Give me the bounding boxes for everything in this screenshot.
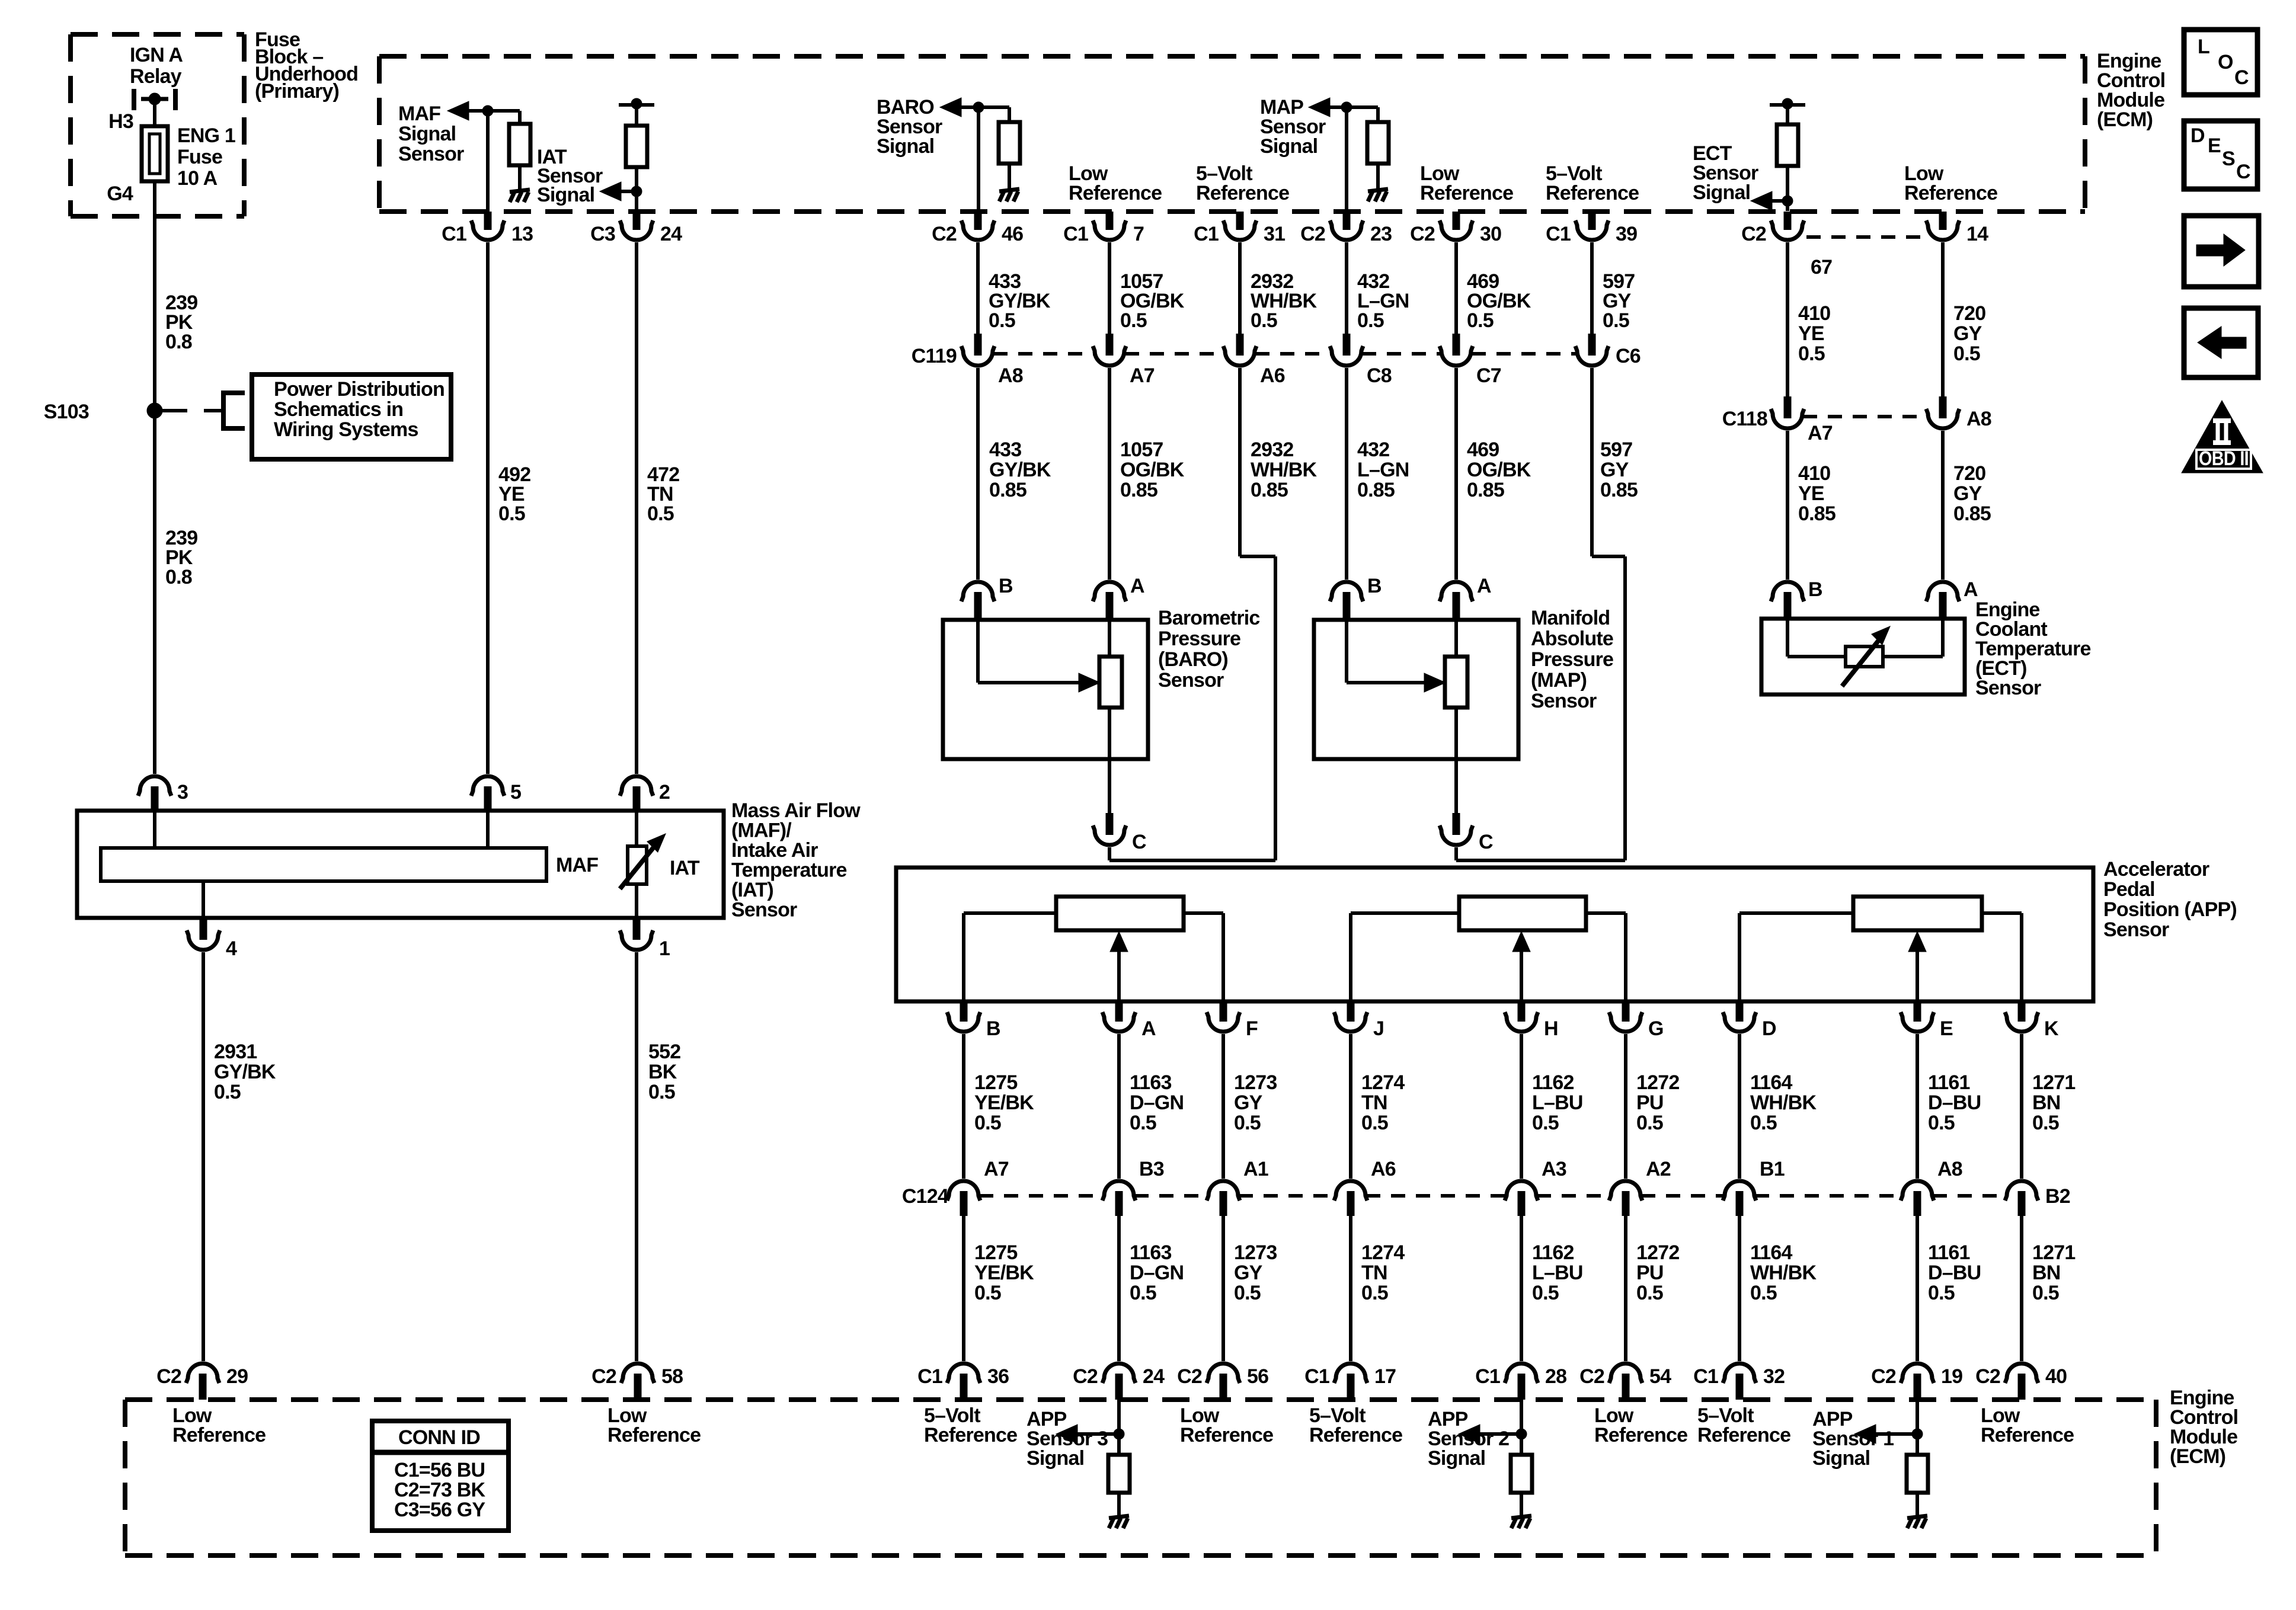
svg-text:C124: C124 bbox=[902, 1185, 949, 1208]
svg-text:0.5: 0.5 bbox=[1467, 309, 1494, 332]
svg-text:C2: C2 bbox=[1300, 223, 1325, 245]
svg-text:A7: A7 bbox=[984, 1158, 1009, 1180]
svg-text:Reference: Reference bbox=[1594, 1424, 1687, 1446]
svg-text:0.5: 0.5 bbox=[2032, 1282, 2059, 1304]
svg-text:2: 2 bbox=[659, 781, 670, 804]
svg-text:C1=56 BU: C1=56 BU bbox=[394, 1459, 485, 1481]
svg-text:1275: 1275 bbox=[974, 1071, 1017, 1094]
svg-text:0.5: 0.5 bbox=[1357, 309, 1384, 332]
svg-text:1164: 1164 bbox=[1750, 1241, 1792, 1264]
svg-text:B: B bbox=[986, 1017, 1000, 1040]
svg-text:A: A bbox=[1964, 578, 1978, 601]
svg-text:A: A bbox=[1141, 1017, 1156, 1040]
svg-text:0.5: 0.5 bbox=[1130, 1282, 1156, 1304]
svg-text:Pedal: Pedal bbox=[2103, 878, 2155, 901]
svg-text:Reference: Reference bbox=[1981, 1424, 2074, 1446]
svg-text:0.85: 0.85 bbox=[1251, 479, 1288, 501]
svg-text:1271: 1271 bbox=[2032, 1071, 2075, 1094]
svg-text:D–GN: D–GN bbox=[1130, 1092, 1184, 1114]
svg-text:C1: C1 bbox=[1475, 1365, 1500, 1388]
svg-text:GY: GY bbox=[1234, 1262, 1263, 1284]
svg-text:Reference: Reference bbox=[1904, 182, 1997, 204]
svg-text:0.85: 0.85 bbox=[1953, 502, 1991, 525]
svg-text:L–BU: L–BU bbox=[1532, 1262, 1583, 1284]
svg-text:1271: 1271 bbox=[2032, 1241, 2075, 1264]
svg-text:46: 46 bbox=[1002, 223, 1023, 245]
svg-text:0.5: 0.5 bbox=[1532, 1112, 1559, 1134]
svg-text:0.5: 0.5 bbox=[1953, 343, 1980, 365]
svg-text:A8: A8 bbox=[1937, 1158, 1962, 1180]
svg-text:Absolute: Absolute bbox=[1531, 628, 1613, 650]
svg-text:A7: A7 bbox=[1130, 364, 1155, 387]
svg-text:0.5: 0.5 bbox=[647, 502, 674, 525]
svg-text:Wiring Systems: Wiring Systems bbox=[274, 418, 418, 441]
svg-text:469: 469 bbox=[1467, 438, 1499, 461]
svg-text:0.5: 0.5 bbox=[1928, 1112, 1955, 1134]
svg-text:C2: C2 bbox=[1410, 223, 1435, 245]
svg-text:Manifold: Manifold bbox=[1531, 607, 1610, 629]
svg-text:1163: 1163 bbox=[1130, 1071, 1172, 1094]
svg-text:Power Distribution: Power Distribution bbox=[274, 378, 445, 401]
svg-text:67: 67 bbox=[1811, 256, 1832, 279]
svg-text:Reference: Reference bbox=[172, 1424, 266, 1446]
svg-text:Intake Air: Intake Air bbox=[731, 839, 818, 862]
svg-text:WH/BK: WH/BK bbox=[1750, 1262, 1817, 1284]
svg-text:L–GN: L–GN bbox=[1357, 459, 1409, 481]
svg-text:C1: C1 bbox=[1693, 1365, 1718, 1388]
svg-text:54: 54 bbox=[1649, 1365, 1671, 1388]
svg-text:TN: TN bbox=[1361, 1262, 1387, 1284]
svg-text:0.5: 0.5 bbox=[1636, 1112, 1663, 1134]
svg-text:D–BU: D–BU bbox=[1928, 1262, 1981, 1284]
svg-text:Reference: Reference bbox=[1069, 182, 1162, 204]
svg-text:L–BU: L–BU bbox=[1532, 1092, 1583, 1114]
svg-text:C2: C2 bbox=[1871, 1365, 1896, 1388]
svg-text:C7: C7 bbox=[1476, 364, 1501, 387]
svg-text:0.5: 0.5 bbox=[1798, 343, 1825, 365]
svg-text:0.85: 0.85 bbox=[1357, 479, 1395, 501]
svg-text:Accelerator: Accelerator bbox=[2103, 858, 2209, 881]
svg-text:14: 14 bbox=[1966, 223, 1988, 245]
svg-text:5: 5 bbox=[510, 781, 521, 804]
svg-text:C2: C2 bbox=[1975, 1365, 2000, 1388]
svg-text:GY: GY bbox=[1953, 482, 1982, 505]
svg-text:24: 24 bbox=[660, 223, 682, 245]
svg-text:1162: 1162 bbox=[1532, 1241, 1574, 1264]
svg-text:36: 36 bbox=[987, 1365, 1009, 1388]
svg-text:A6: A6 bbox=[1260, 364, 1285, 387]
svg-text:31: 31 bbox=[1264, 223, 1285, 245]
svg-text:Signal: Signal bbox=[877, 135, 934, 158]
svg-text:24: 24 bbox=[1143, 1365, 1165, 1388]
svg-text:39: 39 bbox=[1616, 223, 1637, 245]
svg-text:0.5: 0.5 bbox=[2032, 1112, 2059, 1134]
svg-text:28: 28 bbox=[1545, 1365, 1566, 1388]
svg-text:0.5: 0.5 bbox=[989, 309, 1015, 332]
svg-text:G4: G4 bbox=[107, 183, 133, 205]
svg-text:A7: A7 bbox=[1808, 422, 1833, 444]
svg-text:Sensor: Sensor bbox=[398, 143, 464, 165]
svg-text:7: 7 bbox=[1133, 223, 1144, 245]
svg-text:56: 56 bbox=[1247, 1365, 1268, 1388]
svg-text:(ECM): (ECM) bbox=[2097, 108, 2153, 131]
svg-text:H3: H3 bbox=[108, 110, 133, 133]
svg-text:Sensor: Sensor bbox=[731, 899, 797, 921]
svg-text:YE: YE bbox=[1798, 482, 1824, 505]
svg-text:0.5: 0.5 bbox=[1234, 1112, 1261, 1134]
svg-text:A: A bbox=[1477, 575, 1491, 597]
svg-text:C2: C2 bbox=[1073, 1365, 1098, 1388]
svg-text:1161: 1161 bbox=[1928, 1071, 1970, 1094]
svg-text:410: 410 bbox=[1798, 302, 1830, 325]
svg-text:Signal: Signal bbox=[1260, 135, 1318, 158]
svg-text:Reference: Reference bbox=[1309, 1424, 1402, 1446]
svg-text:C2: C2 bbox=[591, 1365, 616, 1388]
svg-text:F: F bbox=[1246, 1017, 1258, 1040]
svg-text:C2: C2 bbox=[1177, 1365, 1202, 1388]
svg-text:D: D bbox=[1762, 1017, 1776, 1040]
svg-text:OG/BK: OG/BK bbox=[1467, 459, 1531, 481]
svg-text:C2=73 BK: C2=73 BK bbox=[394, 1479, 486, 1502]
svg-text:C119: C119 bbox=[912, 345, 957, 367]
svg-text:C: C bbox=[2236, 161, 2250, 183]
svg-text:(MAF)/: (MAF)/ bbox=[731, 820, 792, 842]
svg-text:410: 410 bbox=[1798, 462, 1830, 485]
svg-text:(IAT): (IAT) bbox=[731, 879, 773, 901]
svg-text:(MAP): (MAP) bbox=[1531, 669, 1587, 692]
svg-text:0.5: 0.5 bbox=[1636, 1282, 1663, 1304]
svg-text:Signal: Signal bbox=[1812, 1447, 1870, 1470]
svg-text:(BARO): (BARO) bbox=[1158, 648, 1228, 671]
svg-text:0.85: 0.85 bbox=[1467, 479, 1504, 501]
svg-text:0.5: 0.5 bbox=[1251, 309, 1277, 332]
svg-text:0.5: 0.5 bbox=[1750, 1112, 1777, 1134]
svg-text:17: 17 bbox=[1374, 1365, 1396, 1388]
svg-text:432: 432 bbox=[1357, 438, 1389, 461]
svg-text:PU: PU bbox=[1636, 1262, 1664, 1284]
svg-text:B: B bbox=[1808, 578, 1822, 601]
svg-text:1274: 1274 bbox=[1361, 1241, 1405, 1264]
svg-text:Signal: Signal bbox=[1693, 181, 1750, 204]
svg-text:Sensor: Sensor bbox=[1531, 690, 1597, 712]
svg-text:Sensor: Sensor bbox=[2103, 918, 2169, 941]
svg-text:PU: PU bbox=[1636, 1092, 1664, 1114]
svg-text:1274: 1274 bbox=[1361, 1071, 1405, 1094]
svg-text:OBD II: OBD II bbox=[2199, 447, 2249, 470]
svg-text:0.5: 0.5 bbox=[1361, 1282, 1388, 1304]
svg-text:1163: 1163 bbox=[1130, 1241, 1172, 1264]
svg-text:Reference: Reference bbox=[924, 1424, 1017, 1446]
svg-text:1273: 1273 bbox=[1234, 1241, 1277, 1264]
svg-text:GY: GY bbox=[1600, 459, 1629, 481]
svg-text:C2: C2 bbox=[156, 1365, 181, 1388]
svg-text:Reference: Reference bbox=[1546, 182, 1639, 204]
svg-text:0.85: 0.85 bbox=[1600, 479, 1638, 501]
svg-text:32: 32 bbox=[1763, 1365, 1785, 1388]
svg-text:GY/BK: GY/BK bbox=[989, 459, 1051, 481]
svg-text:BK: BK bbox=[648, 1061, 677, 1083]
svg-text:Reference: Reference bbox=[1196, 182, 1289, 204]
svg-text:0.5: 0.5 bbox=[1120, 309, 1147, 332]
svg-text:K: K bbox=[2044, 1017, 2059, 1040]
svg-text:Pressure: Pressure bbox=[1158, 628, 1240, 650]
svg-text:C: C bbox=[1132, 831, 1146, 853]
svg-text:IGN A: IGN A bbox=[130, 44, 183, 66]
svg-text:OG/BK: OG/BK bbox=[1120, 459, 1185, 481]
svg-text:(ECM): (ECM) bbox=[2170, 1445, 2225, 1468]
svg-text:J: J bbox=[1373, 1017, 1384, 1040]
svg-text:C2: C2 bbox=[1579, 1365, 1604, 1388]
svg-text:720: 720 bbox=[1953, 462, 1985, 485]
svg-text:29: 29 bbox=[226, 1365, 248, 1388]
svg-text:E: E bbox=[2208, 135, 2221, 157]
svg-text:C: C bbox=[1479, 831, 1493, 853]
svg-text:C: C bbox=[2234, 66, 2249, 89]
svg-text:0.5: 0.5 bbox=[1750, 1282, 1777, 1304]
svg-text:23: 23 bbox=[1370, 223, 1392, 245]
svg-text:CONN ID: CONN ID bbox=[398, 1426, 480, 1449]
svg-text:1273: 1273 bbox=[1234, 1071, 1277, 1094]
svg-text:S: S bbox=[2222, 148, 2235, 170]
svg-text:Reference: Reference bbox=[1180, 1424, 1273, 1446]
svg-text:Reference: Reference bbox=[1420, 182, 1513, 204]
svg-text:C1: C1 bbox=[1304, 1365, 1329, 1388]
svg-text:Temperature: Temperature bbox=[731, 859, 847, 882]
svg-text:WH/BK: WH/BK bbox=[1251, 459, 1317, 481]
svg-text:Mass Air Flow: Mass Air Flow bbox=[731, 799, 861, 822]
svg-text:A8: A8 bbox=[998, 364, 1023, 387]
svg-text:0.5: 0.5 bbox=[1130, 1112, 1156, 1134]
svg-text:B: B bbox=[1367, 575, 1382, 597]
svg-text:YE/BK: YE/BK bbox=[974, 1262, 1034, 1284]
svg-text:0.5: 0.5 bbox=[498, 502, 525, 525]
svg-text:A3: A3 bbox=[1542, 1158, 1566, 1180]
svg-text:WH/BK: WH/BK bbox=[1750, 1092, 1817, 1114]
svg-text:2932: 2932 bbox=[1251, 438, 1293, 461]
svg-text:Fuse: Fuse bbox=[177, 146, 222, 168]
svg-text:S103: S103 bbox=[44, 401, 89, 423]
svg-text:Position (APP): Position (APP) bbox=[2103, 898, 2237, 921]
svg-text:C1: C1 bbox=[917, 1365, 942, 1388]
svg-text:YE: YE bbox=[1798, 322, 1824, 345]
svg-text:C1: C1 bbox=[1194, 223, 1219, 245]
svg-text:Pressure: Pressure bbox=[1531, 648, 1613, 671]
svg-text:C3: C3 bbox=[590, 223, 615, 245]
svg-text:H: H bbox=[1544, 1017, 1558, 1040]
svg-text:A: A bbox=[1130, 575, 1144, 597]
svg-text:ENG 1: ENG 1 bbox=[177, 124, 235, 147]
svg-text:19: 19 bbox=[1941, 1365, 1962, 1388]
svg-text:C6: C6 bbox=[1616, 345, 1641, 367]
svg-text:0.5: 0.5 bbox=[648, 1081, 675, 1103]
svg-text:720: 720 bbox=[1953, 302, 1985, 325]
svg-text:0.5: 0.5 bbox=[1928, 1282, 1955, 1304]
svg-text:0.5: 0.5 bbox=[974, 1112, 1001, 1134]
svg-text:B3: B3 bbox=[1139, 1158, 1164, 1180]
svg-text:0.8: 0.8 bbox=[165, 331, 192, 353]
svg-text:552: 552 bbox=[648, 1041, 680, 1063]
svg-text:C1: C1 bbox=[442, 223, 466, 245]
svg-text:Relay: Relay bbox=[130, 65, 182, 88]
svg-text:1272: 1272 bbox=[1636, 1241, 1679, 1264]
svg-text:(Primary): (Primary) bbox=[255, 80, 339, 103]
svg-text:C1: C1 bbox=[1546, 223, 1571, 245]
svg-text:58: 58 bbox=[661, 1365, 683, 1388]
svg-text:MAF: MAF bbox=[398, 103, 440, 125]
svg-text:1272: 1272 bbox=[1636, 1071, 1679, 1094]
svg-text:O: O bbox=[2218, 51, 2233, 73]
svg-text:B: B bbox=[999, 575, 1013, 597]
svg-text:433: 433 bbox=[989, 438, 1021, 461]
svg-text:A8: A8 bbox=[1966, 408, 1991, 430]
svg-text:A2: A2 bbox=[1646, 1158, 1671, 1180]
svg-text:YE/BK: YE/BK bbox=[974, 1092, 1034, 1114]
svg-text:GY: GY bbox=[1234, 1092, 1263, 1114]
svg-text:0.85: 0.85 bbox=[1120, 479, 1157, 501]
svg-text:TN: TN bbox=[1361, 1092, 1387, 1114]
svg-text:D–BU: D–BU bbox=[1928, 1092, 1981, 1114]
svg-text:C2: C2 bbox=[1741, 223, 1766, 245]
svg-text:BN: BN bbox=[2032, 1092, 2061, 1114]
svg-text:0.5: 0.5 bbox=[1532, 1282, 1559, 1304]
svg-text:0.85: 0.85 bbox=[1798, 502, 1835, 525]
svg-text:C8: C8 bbox=[1367, 364, 1392, 387]
svg-text:1162: 1162 bbox=[1532, 1071, 1574, 1094]
svg-text:597: 597 bbox=[1600, 438, 1632, 461]
svg-text:0.5: 0.5 bbox=[1361, 1112, 1388, 1134]
svg-text:0.5: 0.5 bbox=[974, 1282, 1001, 1304]
svg-text:1: 1 bbox=[659, 937, 670, 960]
svg-text:C1: C1 bbox=[1063, 223, 1088, 245]
svg-text:Signal: Signal bbox=[1428, 1447, 1485, 1470]
svg-text:0.5: 0.5 bbox=[1603, 309, 1629, 332]
svg-text:1275: 1275 bbox=[974, 1241, 1017, 1264]
svg-text:Barometric: Barometric bbox=[1158, 607, 1260, 629]
svg-text:C2: C2 bbox=[932, 223, 957, 245]
svg-text:Signal: Signal bbox=[398, 123, 456, 145]
svg-text:L: L bbox=[2198, 36, 2209, 58]
svg-text:0.8: 0.8 bbox=[165, 566, 192, 588]
svg-text:13: 13 bbox=[511, 223, 533, 245]
svg-text:BN: BN bbox=[2032, 1262, 2061, 1284]
svg-text:4: 4 bbox=[226, 937, 237, 960]
svg-text:B1: B1 bbox=[1760, 1158, 1785, 1180]
svg-text:Sensor: Sensor bbox=[1158, 669, 1224, 692]
svg-text:0.85: 0.85 bbox=[989, 479, 1027, 501]
svg-text:Signal: Signal bbox=[537, 184, 594, 206]
svg-text:B2: B2 bbox=[2045, 1185, 2070, 1208]
svg-text:1164: 1164 bbox=[1750, 1071, 1792, 1094]
svg-text:E: E bbox=[1940, 1017, 1953, 1040]
svg-text:Sensor: Sensor bbox=[1975, 677, 2041, 699]
svg-text:A1: A1 bbox=[1243, 1158, 1268, 1180]
svg-text:2931: 2931 bbox=[214, 1041, 257, 1063]
svg-text:G: G bbox=[1648, 1017, 1664, 1040]
svg-text:Signal: Signal bbox=[1027, 1447, 1084, 1470]
svg-text:Reference: Reference bbox=[1697, 1424, 1790, 1446]
svg-text:D–GN: D–GN bbox=[1130, 1262, 1184, 1284]
svg-text:C3=56 GY: C3=56 GY bbox=[394, 1499, 485, 1521]
svg-text:Reference: Reference bbox=[607, 1424, 701, 1446]
svg-text:3: 3 bbox=[177, 781, 188, 804]
svg-text:40: 40 bbox=[2045, 1365, 2067, 1388]
svg-text:C118: C118 bbox=[1722, 408, 1767, 430]
svg-text:A6: A6 bbox=[1371, 1158, 1396, 1180]
svg-text:MAF: MAF bbox=[556, 854, 598, 876]
svg-text:D: D bbox=[2191, 124, 2205, 147]
svg-text:1057: 1057 bbox=[1120, 438, 1163, 461]
svg-text:30: 30 bbox=[1480, 223, 1501, 245]
svg-text:GY: GY bbox=[1953, 322, 1982, 345]
svg-text:Schematics in: Schematics in bbox=[274, 398, 403, 421]
svg-text:0.5: 0.5 bbox=[1234, 1282, 1261, 1304]
svg-text:10 A: 10 A bbox=[177, 167, 218, 190]
svg-text:0.5: 0.5 bbox=[214, 1081, 241, 1103]
svg-text:1161: 1161 bbox=[1928, 1241, 1970, 1264]
svg-text:GY/BK: GY/BK bbox=[214, 1061, 276, 1083]
svg-text:IAT: IAT bbox=[670, 857, 700, 879]
